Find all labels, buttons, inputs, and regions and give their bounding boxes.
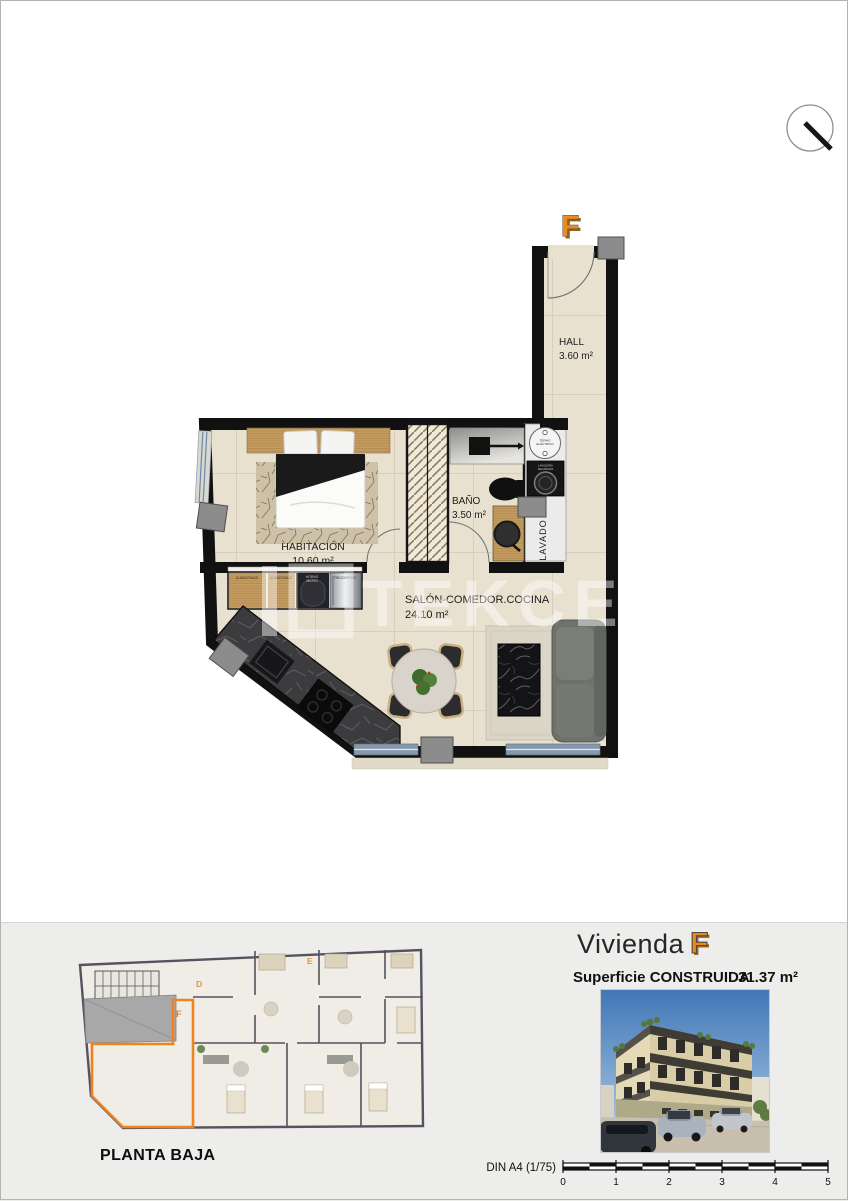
room-label-hall: HALL [559, 337, 584, 348]
scale-segments [563, 1160, 828, 1173]
cabinet-label: ALMACENAJE [236, 576, 259, 580]
window-bottom-2 [506, 744, 600, 755]
dining-table [392, 649, 456, 713]
scale-bar: DIN A4 (1/75) 0 1 2 3 4 5 [478, 1151, 838, 1191]
room-label-lavado: LAVADO [538, 519, 548, 560]
water-heater: TERMO ELÉCTRICO [530, 428, 561, 459]
window-sill [352, 758, 608, 769]
surface-label: Superficie CONSTRUIDA [573, 969, 750, 986]
watermark-text: TEKCE [362, 566, 626, 640]
coffee-table [498, 644, 540, 716]
svg-text:2: 2 [666, 1177, 672, 1188]
compass-icon [787, 105, 833, 151]
svg-text:1: 1 [613, 1177, 619, 1188]
window-bottom-1 [354, 744, 418, 755]
unit-title: ViviendaF [577, 927, 709, 961]
siteplan-letter-e: E [307, 956, 313, 966]
unit-label: F F [561, 210, 582, 246]
svg-text:MICRO: MICRO [306, 579, 318, 583]
room-area-hall: 3.60 m² [559, 351, 594, 362]
washer-dryer: LAVADORA SECADORA [527, 461, 564, 496]
site-plan-title: PLANTA BAJA [100, 1147, 216, 1165]
footer-panel: F D E PLANTA BAJA ViviendaF Superficie C… [0, 922, 848, 1201]
svg-text:5: 5 [825, 1177, 831, 1188]
siteplan-patio [84, 995, 176, 1043]
svg-text:SECADORA: SECADORA [538, 467, 554, 471]
scale-label: DIN A4 (1/75) [486, 1162, 556, 1174]
scale-numbers: 0 1 2 3 4 5 [560, 1177, 831, 1188]
site-plan: F D E [55, 937, 450, 1149]
building-photo [600, 989, 770, 1153]
wardrobe [407, 424, 448, 562]
svg-text:ELÉCTRICO: ELÉCTRICO [536, 441, 554, 446]
siteplan-letter-d: D [196, 979, 202, 989]
floor-plan: F F TERMO ELÉCTRICO LAVADORA SECADORA [0, 0, 848, 922]
room-label-bano: BAÑO [452, 494, 481, 507]
svg-text:4: 4 [772, 1177, 778, 1188]
room-area-bano: 3.50 m² [452, 510, 487, 521]
shower [450, 428, 524, 464]
svg-text:3: 3 [719, 1177, 725, 1188]
unit-title-prefix: Vivienda [577, 929, 684, 959]
unit-label-text: F [561, 210, 579, 243]
svg-text:0: 0 [560, 1177, 566, 1188]
room-label-habitacion: HABITACIÓN [281, 540, 344, 553]
unit-title-letter: F [690, 927, 709, 960]
siteplan-letter-f: F [176, 1009, 182, 1020]
surface-value: 31.37 m² [738, 969, 798, 986]
